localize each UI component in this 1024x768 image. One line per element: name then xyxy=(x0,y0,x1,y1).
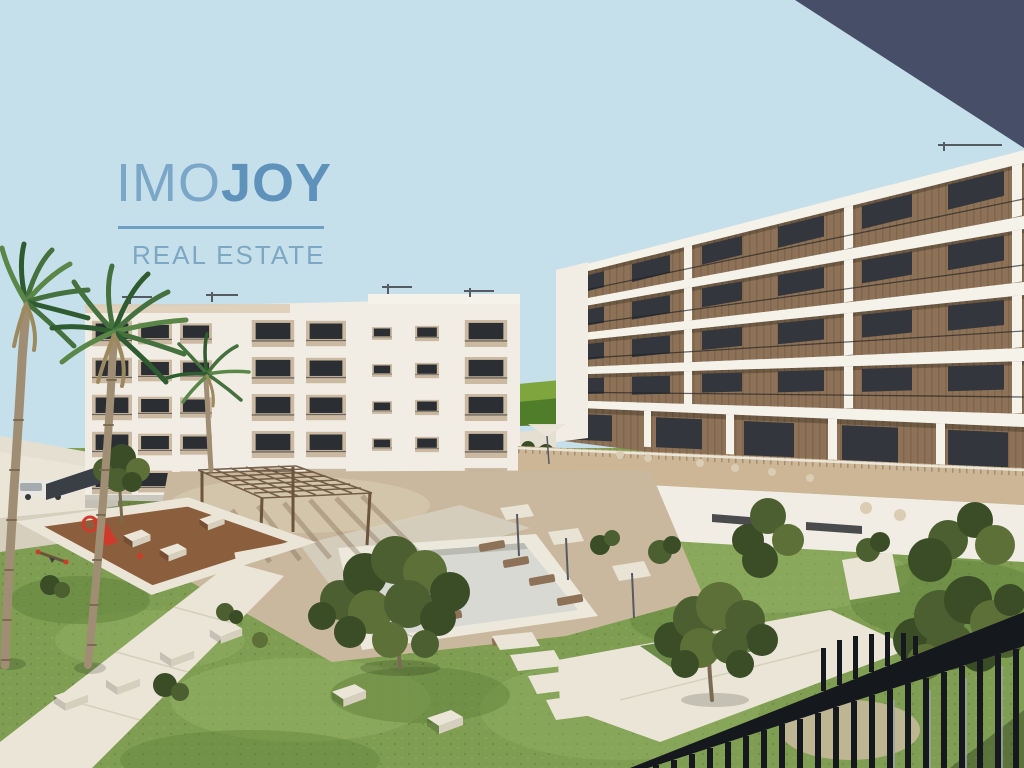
brand-suffix: JOY xyxy=(221,153,332,213)
brand-prefix: IMO xyxy=(116,153,221,213)
spring-rider xyxy=(137,553,143,559)
brand-tagline: REAL ESTATE xyxy=(132,242,332,268)
logo-divider xyxy=(118,226,324,229)
render-scene xyxy=(0,0,1024,768)
building-end-wall xyxy=(556,262,588,442)
architectural-render: IMOJOY REAL ESTATE xyxy=(0,0,1024,768)
brand-wordmark: IMOJOY xyxy=(116,156,332,210)
watermark-logo: IMOJOY REAL ESTATE xyxy=(116,156,332,268)
